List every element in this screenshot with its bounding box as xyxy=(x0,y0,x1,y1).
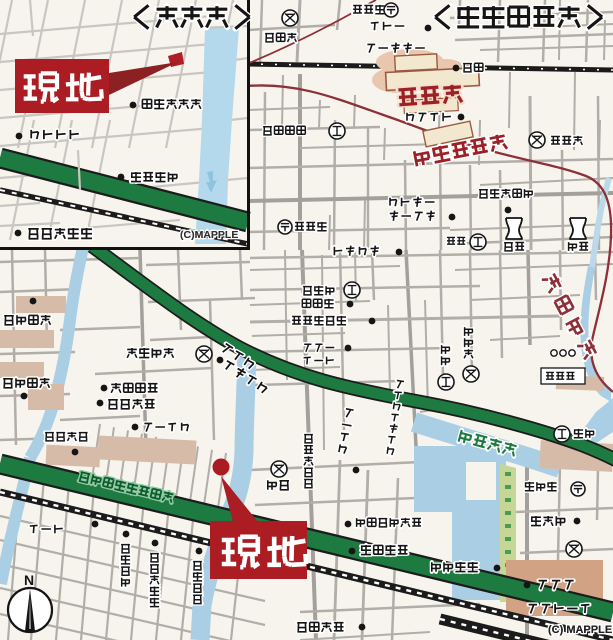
svg-text:N: N xyxy=(24,572,34,588)
svg-text:(C) MAPPLE: (C) MAPPLE xyxy=(548,624,612,636)
svg-text:(C)MAPPLE: (C)MAPPLE xyxy=(180,229,238,241)
